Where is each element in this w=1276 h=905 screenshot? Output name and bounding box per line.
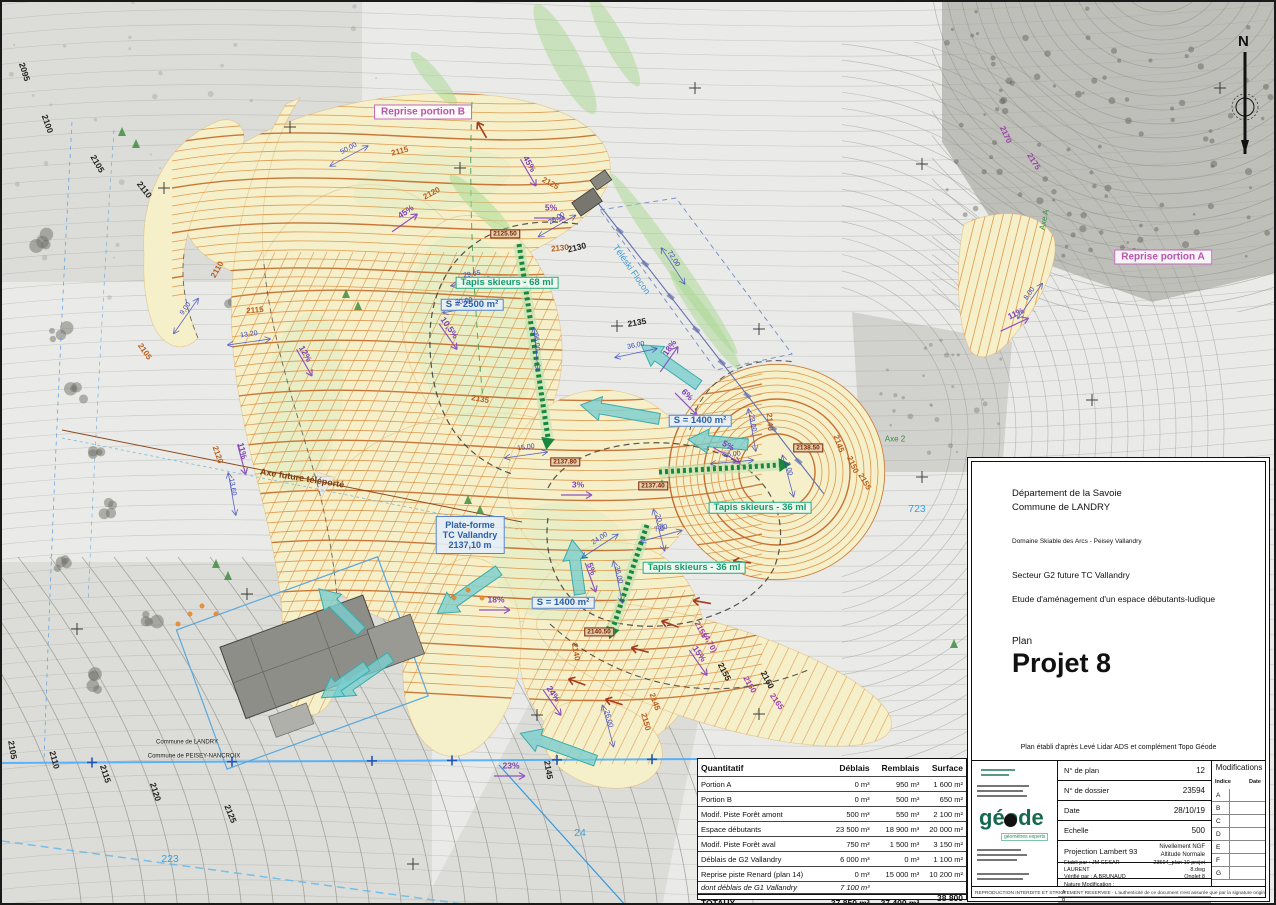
modification-row: C	[1212, 815, 1265, 828]
platform-label-line: TC Vallandry	[443, 530, 498, 540]
title-block-footer: REPRODUCTION INTERDITE ET STRICTEMENT RE…	[971, 886, 1266, 899]
table-cell: 500 m³	[873, 795, 923, 804]
commune: Commune de LANDRY	[1012, 502, 1110, 513]
quantity-table-header: Quantitatif Déblais Remblais Surface	[698, 759, 966, 777]
table-cell: Modif. Piste Forêt aval	[698, 840, 825, 849]
table-cell: TOTAUX	[698, 898, 825, 905]
table-cell: Portion A	[698, 780, 825, 789]
levelling2: Altitude Normale	[1161, 852, 1205, 858]
modification-index: B	[1212, 802, 1230, 814]
table-row: Portion B0 m³500 m³650 m²	[698, 792, 966, 807]
geode-logo-dot	[1004, 814, 1017, 827]
modifications-col-date: Date	[1249, 779, 1261, 785]
table-cell: dont déblais de G1 Vallandry	[698, 883, 825, 892]
modification-index: E	[1212, 841, 1230, 853]
table-cell: 18 900 m³	[873, 825, 923, 834]
modification-index: C	[1212, 815, 1230, 827]
table-cell: 37 850 m³	[825, 898, 873, 905]
modification-index: A	[1212, 789, 1230, 801]
col-deblais: Déblais	[825, 763, 873, 773]
modification-row: E	[1212, 841, 1265, 854]
north-label: N	[1238, 33, 1249, 50]
table-row: Modif. Piste Forêt aval750 m³1 500 m³3 1…	[698, 837, 966, 852]
table-cell: 6 000 m³	[825, 855, 873, 864]
table-cell: 650 m²	[922, 795, 966, 804]
field-label: N° de dossier	[1064, 786, 1109, 795]
table-cell: 750 m³	[825, 840, 873, 849]
modification-index: F	[1212, 854, 1230, 866]
table-cell: 550 m³	[873, 810, 923, 819]
table-cell: 0 m³	[825, 795, 873, 804]
table-row: Déblais de G2 Vallandry6 000 m³0 m³1 100…	[698, 852, 966, 867]
modification-index: D	[1212, 828, 1230, 840]
table-row: Espace débutants23 500 m³18 900 m³20 000…	[698, 822, 966, 837]
title-field-row: Echelle 500	[1058, 821, 1211, 841]
field-value: 500	[1192, 826, 1205, 835]
table-row: Modif. Piste Forêt amont500 m³550 m³2 10…	[698, 807, 966, 822]
plan-canvas: N Reprise portion BReprise portion ATapi…	[0, 0, 1276, 905]
table-cell: 3 150 m²	[922, 840, 966, 849]
title-field-row: N° de dossier 23594	[1058, 781, 1211, 801]
table-cell: 1 600 m²	[922, 780, 966, 789]
geode-logo-subtext: géomètres experts	[1001, 833, 1048, 841]
plan-name: Projet 8	[1012, 648, 1111, 679]
modification-index: G	[1212, 867, 1230, 879]
study-title: Etude d'aménagement d'un espace débutant…	[1012, 594, 1215, 604]
field-label: N° de plan	[1064, 766, 1099, 775]
table-cell: Modif. Piste Forêt amont	[698, 810, 825, 819]
col-surface: Surface	[922, 763, 966, 773]
platform-label: Plate-formeTC Vallandry2137,10 m	[436, 516, 505, 554]
table-cell: 0 m³	[825, 780, 873, 789]
field-value: 23594	[1183, 786, 1205, 795]
table-cell: 1 500 m³	[873, 840, 923, 849]
source-note: Plan établi d'après Levé Lidar ADS et co…	[968, 744, 1269, 751]
table-cell: 15 000 m³	[873, 870, 923, 879]
sector: Secteur G2 future TC Vallandry	[1012, 570, 1130, 580]
plan-label: Plan	[1012, 636, 1032, 647]
table-total-row: TOTAUX37 850 m³37 400 m³38 800 m²	[698, 894, 966, 905]
authors-row: Etabli par : JM CESAR-LAURENT Vérifié pa…	[1058, 863, 1211, 879]
table-cell: Portion B	[698, 795, 825, 804]
modifications-rows: ABCDEFG	[1212, 789, 1265, 880]
title-block: Département de la Savoie Commune de LAND…	[967, 457, 1270, 902]
table-cell: 7 100 m³	[825, 883, 873, 892]
platform-label-line: 2137,10 m	[443, 540, 498, 550]
modification-row: D	[1212, 828, 1265, 841]
department: Département de la Savoie	[1012, 488, 1122, 499]
title-field-row: Date 28/10/19	[1058, 801, 1211, 821]
modification-row: G	[1212, 867, 1265, 880]
table-cell: 38 800 m²	[922, 893, 966, 905]
domain: Domaine Skiable des Arcs - Peisey Vallan…	[1012, 538, 1142, 545]
modifications-title: Modifications	[1212, 763, 1266, 772]
table-cell: 0 m³	[825, 870, 873, 879]
table-row: Portion A0 m³950 m³1 600 m²	[698, 777, 966, 792]
projection-label: Projection Lambert 93	[1064, 847, 1137, 856]
title-block-grid: géode géomètres experts N° de plan 12N° …	[971, 760, 1266, 887]
platform-label-line: Plate-forme	[443, 520, 498, 530]
table-cell: 37 400 m³	[873, 898, 923, 905]
table-cell: 10 200 m²	[922, 870, 966, 879]
table-cell: 20 000 m²	[922, 825, 966, 834]
quantity-table: Quantitatif Déblais Remblais Surface Por…	[697, 758, 967, 900]
col-quantitatif: Quantitatif	[698, 763, 825, 773]
table-cell: Reprise piste Renard (plan 14)	[698, 870, 825, 879]
etabli-par: Etabli par : JM CESAR-LAURENT	[1064, 860, 1121, 873]
field-label: Date	[1064, 806, 1080, 815]
modification-row: B	[1212, 802, 1265, 815]
table-cell: 2 100 m²	[922, 810, 966, 819]
table-row: Reprise piste Renard (plan 14)0 m³15 000…	[698, 867, 966, 882]
title-field-row: N° de plan 12	[1058, 761, 1211, 781]
table-cell: 950 m³	[873, 780, 923, 789]
field-label: Echelle	[1064, 826, 1089, 835]
table-cell: Espace débutants	[698, 825, 825, 834]
modification-row: A	[1212, 789, 1265, 802]
table-cell: 500 m³	[825, 810, 873, 819]
table-cell: 1 100 m²	[922, 855, 966, 864]
modification-row: F	[1212, 854, 1265, 867]
col-remblais: Remblais	[873, 763, 923, 773]
levelling: Nivellement NGF	[1159, 844, 1205, 850]
field-value: 28/10/19	[1174, 806, 1205, 815]
modifications-col-indice: Indice	[1215, 779, 1231, 785]
table-cell: 23 500 m³	[825, 825, 873, 834]
field-value: 12	[1196, 766, 1205, 775]
table-cell: 0 m³	[873, 855, 923, 864]
table-cell: Déblais de G2 Vallandry	[698, 855, 825, 864]
file-name: 23594_plan 10 projet 8.dwg	[1153, 860, 1205, 873]
